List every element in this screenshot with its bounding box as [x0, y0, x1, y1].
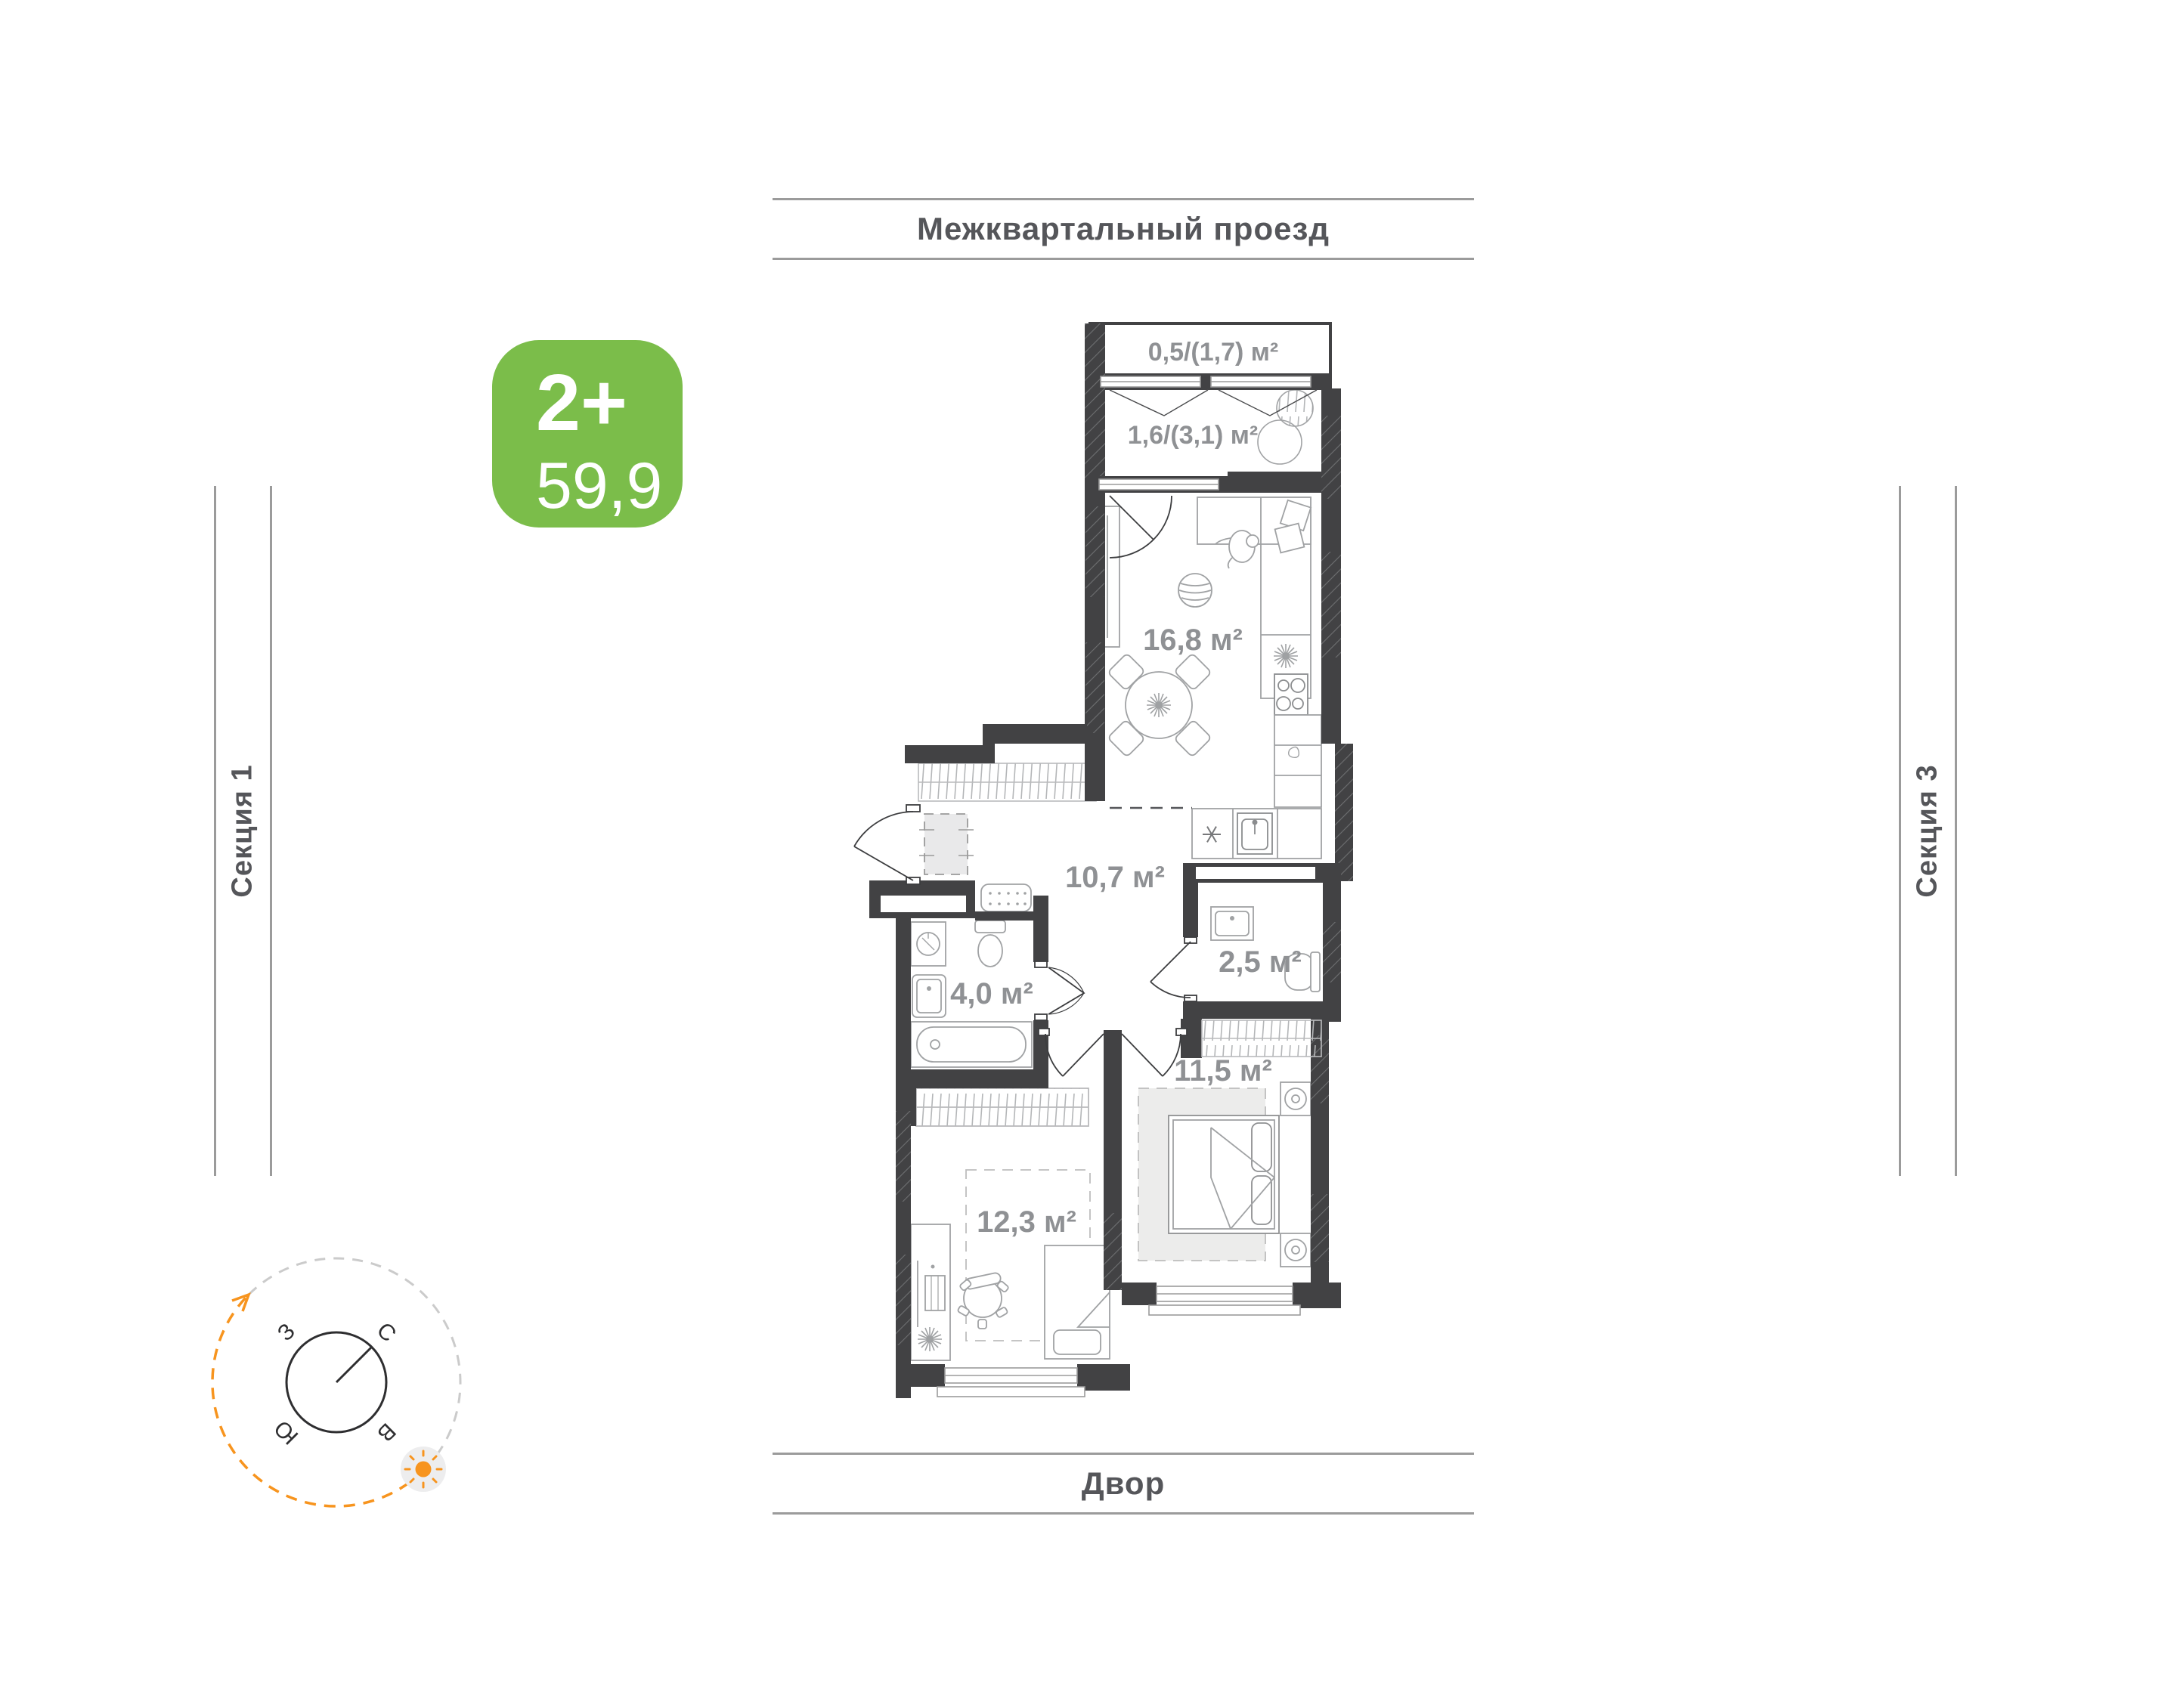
compass-west: З	[273, 1319, 300, 1346]
section-band-right: Секция 3	[1899, 486, 1957, 1176]
street-band-top: Межквартальный проезд	[773, 198, 1474, 260]
loggia-furniture	[1258, 390, 1313, 464]
built-in-closets	[1202, 1020, 1321, 1057]
badge-rooms-count: 2+	[536, 363, 627, 443]
compass-north: С	[372, 1318, 401, 1348]
floorplan-svg: 0,5/(1,7) м² 1,6/(3,1) м² 16,8 м² 10,7 м…	[869, 317, 1353, 1406]
badge-total-area: 59,9	[536, 453, 662, 518]
label-balcony: 0,5/(1,7) м²	[1148, 338, 1279, 367]
section-band-left: Секция 1	[214, 486, 272, 1176]
label-bedroom: 11,5 м²	[1174, 1054, 1272, 1088]
label-room: 12,3 м²	[977, 1205, 1076, 1239]
floorplan-page: Межквартальный проезд Двор Секция 1 Секц…	[0, 0, 2177, 1708]
compass: С З Ю В	[200, 1243, 472, 1508]
label-kitchen: 16,8 м²	[1143, 623, 1243, 657]
section-label-right: Секция 3	[1912, 764, 1944, 897]
section-label-left: Секция 1	[227, 764, 259, 897]
street-label-top: Межквартальный проезд	[917, 211, 1330, 247]
sun-icon	[401, 1447, 446, 1492]
label-bathroom: 4,0 м²	[950, 977, 1033, 1010]
compass-east: В	[372, 1418, 400, 1446]
street-band-bottom: Двор	[773, 1453, 1474, 1515]
label-loggia: 1,6/(3,1) м²	[1128, 421, 1259, 450]
apartment-badge: 2+ 59,9	[492, 340, 683, 528]
street-label-bottom: Двор	[1082, 1465, 1166, 1502]
label-hallway: 10,7 м²	[1065, 861, 1165, 894]
label-wc: 2,5 м²	[1219, 945, 1302, 979]
bedroom-furniture	[1138, 1082, 1311, 1267]
compass-south: Ю	[270, 1416, 304, 1450]
